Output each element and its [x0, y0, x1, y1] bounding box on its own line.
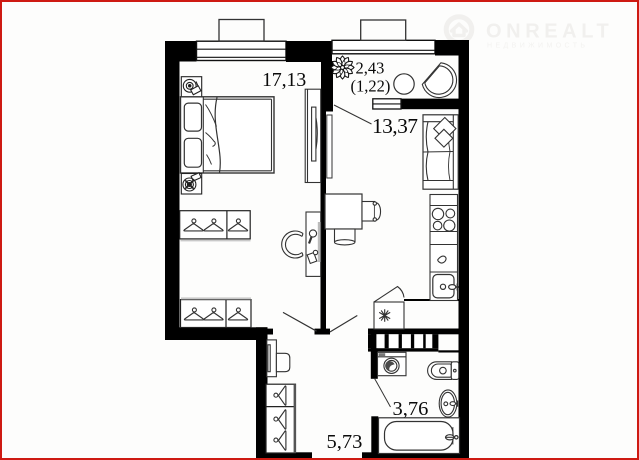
svg-text:3,76: 3,76	[393, 398, 429, 420]
svg-text:2,43: 2,43	[356, 59, 385, 78]
svg-text:ONREALT: ONREALT	[486, 21, 613, 43]
svg-text:5,73: 5,73	[327, 431, 363, 453]
svg-text:17,13: 17,13	[262, 69, 306, 91]
svg-text:(1,22): (1,22)	[351, 77, 391, 96]
svg-text:13,37: 13,37	[372, 114, 418, 138]
svg-text:НЕДВИЖИМОСТЬ: НЕДВИЖИМОСТЬ	[487, 43, 588, 50]
